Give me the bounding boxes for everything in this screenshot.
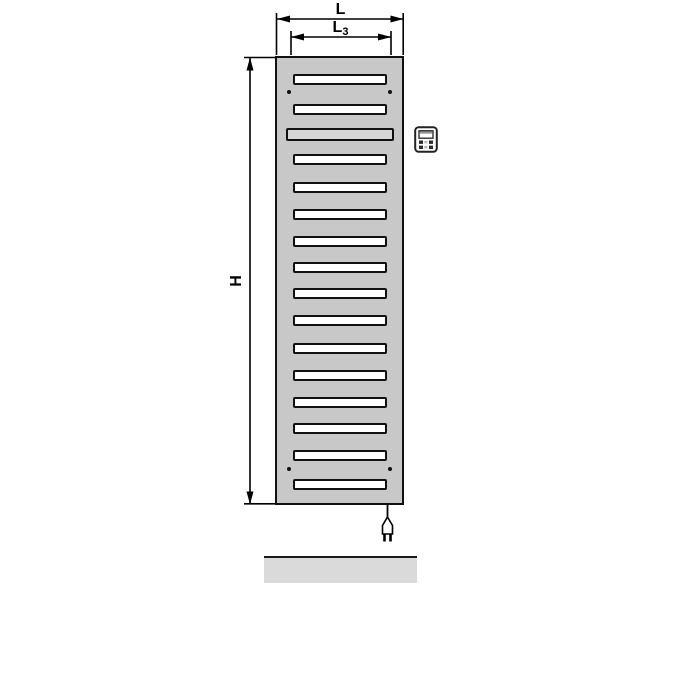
floor-strip [264, 556, 417, 583]
mounting-hole [287, 467, 291, 471]
radiator-slot [293, 182, 387, 193]
radiator-slot [293, 74, 387, 85]
radiator-slot [293, 315, 387, 326]
radiator-slot [293, 343, 387, 354]
dim-line-height [244, 58, 278, 505]
mounting-hole [388, 467, 392, 471]
radiator-technical-drawing: L L3 H [0, 0, 700, 700]
radiator-slot [293, 450, 387, 461]
radiator-wide-slot [286, 128, 394, 141]
dimension-label-inner-width: L3 [277, 19, 404, 41]
heating-controller-icon [414, 126, 438, 153]
dimension-label-width: L [277, 1, 404, 19]
dimension-label-height: H [228, 246, 246, 316]
radiator-slot [293, 236, 387, 247]
radiator-slot [293, 288, 387, 299]
radiator-slot [293, 423, 387, 434]
radiator-body [275, 56, 404, 505]
dimension-label-inner-width-text: L [333, 19, 343, 36]
radiator-slot [293, 370, 387, 381]
radiator-slot [293, 262, 387, 273]
radiator-slot [293, 397, 387, 408]
mounting-hole [388, 90, 392, 94]
radiator-slot [293, 104, 387, 115]
radiator-slot [293, 209, 387, 220]
radiator-slot [293, 154, 387, 165]
mounting-hole [287, 90, 291, 94]
dimension-label-inner-width-subscript: 3 [342, 26, 348, 38]
power-plug-icon [383, 517, 393, 542]
radiator-slot [293, 479, 387, 490]
